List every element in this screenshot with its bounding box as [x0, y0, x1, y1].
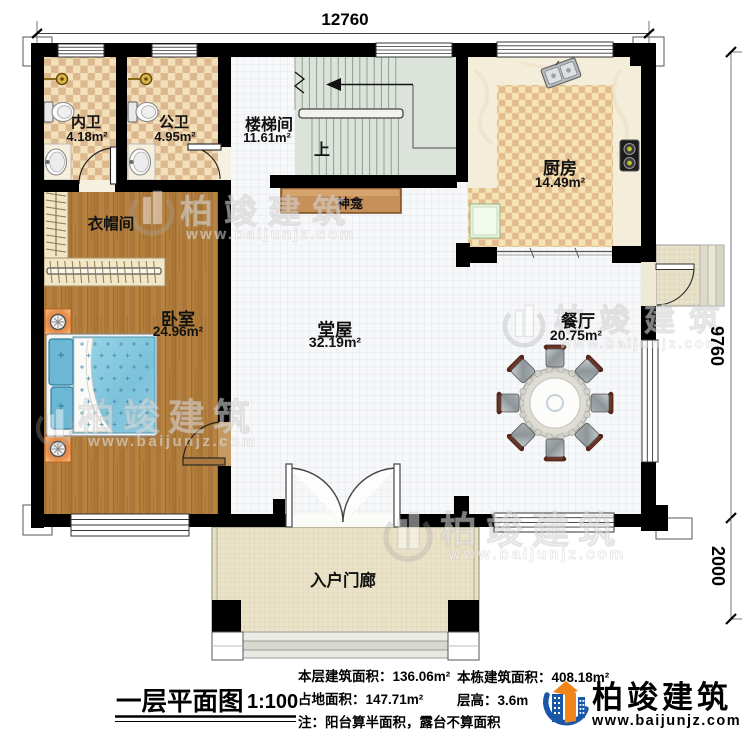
svg-text:4.18m²: 4.18m² — [66, 129, 108, 144]
svg-text:柏竣建筑: 柏竣建筑 — [592, 680, 732, 715]
svg-text:12760: 12760 — [321, 10, 368, 29]
svg-text:入户门廊: 入户门廊 — [310, 570, 376, 590]
svg-text:20.75m²: 20.75m² — [550, 327, 602, 343]
svg-text:14.49m²: 14.49m² — [535, 175, 586, 190]
svg-text:柏竣建筑: 柏竣建筑 — [78, 396, 258, 438]
svg-text:本层建筑面积：136.06m²: 本层建筑面积：136.06m² — [298, 668, 451, 684]
svg-text:2000: 2000 — [708, 546, 728, 586]
svg-text:1:100: 1:100 — [247, 691, 298, 713]
svg-text:注：阳台算半面积，露台不算面积: 注：阳台算半面积，露台不算面积 — [298, 714, 501, 730]
svg-text:上: 上 — [314, 141, 330, 159]
svg-text:本栋建筑面积：408.18m²: 本栋建筑面积：408.18m² — [457, 669, 610, 685]
svg-text:www.baijunjz.com: www.baijunjz.com — [447, 546, 626, 563]
svg-text:4.95m²: 4.95m² — [154, 129, 196, 144]
svg-text:层高：3.6m: 层高：3.6m — [457, 692, 528, 708]
svg-text:24.96m²: 24.96m² — [153, 324, 204, 339]
svg-text:一层平面图: 一层平面图 — [116, 688, 244, 716]
svg-text:柏竣建筑: 柏竣建筑 — [440, 509, 624, 551]
svg-text:柏竣建筑: 柏竣建筑 — [180, 193, 356, 230]
svg-text:11.61m²: 11.61m² — [243, 130, 291, 145]
svg-text:www.baijunjz.com: www.baijunjz.com — [87, 433, 257, 450]
svg-text:www.baijunjz.com: www.baijunjz.com — [185, 226, 355, 243]
svg-text:衣帽间: 衣帽间 — [88, 214, 135, 233]
svg-text:9760: 9760 — [707, 326, 727, 366]
svg-text:www.baijunjz.com: www.baijunjz.com — [591, 713, 741, 729]
svg-text:占地面积：147.71m²: 占地面积：147.71m² — [298, 691, 424, 707]
svg-text:32.19m²: 32.19m² — [309, 334, 361, 350]
